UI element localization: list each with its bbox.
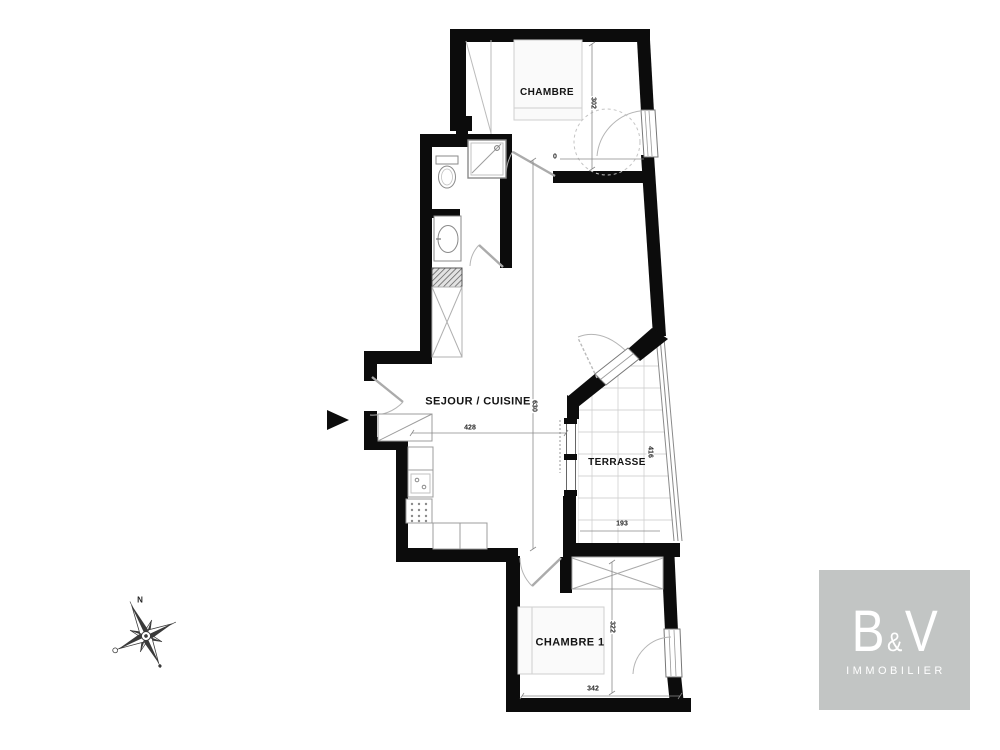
compass-north-label: N bbox=[137, 596, 143, 605]
dim-chambre1-342: 342 bbox=[586, 686, 600, 693]
agency-logo-subtitle: IMMOBILIER bbox=[843, 665, 946, 677]
kitchen-counter-icon bbox=[406, 447, 487, 549]
dim-chambre-302: 302 bbox=[590, 96, 597, 110]
shower-icon bbox=[468, 140, 506, 178]
room-label-chambre: CHAMBRE bbox=[520, 88, 574, 98]
terrasse-tile-grid bbox=[570, 340, 685, 545]
room-label-terrasse: TERRASSE bbox=[588, 458, 646, 468]
sink-icon bbox=[434, 216, 461, 261]
technical-duct-icon bbox=[432, 268, 462, 287]
wardrobe-chambre1-icon bbox=[572, 557, 663, 589]
agency-logo: B & V IMMOBILIER bbox=[819, 570, 970, 710]
entry-closet-icon bbox=[432, 287, 462, 357]
turning-radius-circle bbox=[574, 109, 640, 175]
dim-chambre1-322: 322 bbox=[609, 620, 616, 634]
compass-rose-icon: N bbox=[96, 585, 191, 683]
entry-arrow-icon bbox=[327, 410, 349, 430]
dim-terrasse-193: 193 bbox=[615, 521, 629, 528]
room-label-sejour-cuisine: SEJOUR / CUISINE bbox=[425, 397, 530, 408]
dim-door-0: 0 bbox=[552, 154, 558, 161]
logo-ampersand: & bbox=[887, 629, 902, 656]
agency-logo-brand: B & V bbox=[851, 603, 937, 661]
window-chambre-icon bbox=[641, 110, 658, 157]
terrace-railing bbox=[656, 336, 682, 541]
toilet-icon bbox=[436, 156, 458, 188]
hall-closet-icon bbox=[378, 414, 432, 441]
floorplan-canvas: N CHAMBRE SEJOUR / CUISINE TERRASSE CHAM… bbox=[0, 0, 1000, 750]
dim-terrasse-416: 416 bbox=[647, 445, 654, 459]
bed-chambre-icon bbox=[514, 40, 582, 120]
door-swings bbox=[370, 111, 671, 674]
window-chambre1-icon bbox=[664, 629, 682, 677]
dim-sejour-630: 630 bbox=[531, 399, 538, 413]
bay-window-icon bbox=[560, 418, 577, 496]
room-label-chambre1: CHAMBRE 1 bbox=[536, 638, 605, 649]
terrace-door-icon bbox=[595, 348, 639, 385]
logo-letter-b: B bbox=[851, 603, 884, 661]
logo-letter-v: V bbox=[905, 603, 938, 661]
dim-sejour-428: 428 bbox=[463, 425, 477, 432]
